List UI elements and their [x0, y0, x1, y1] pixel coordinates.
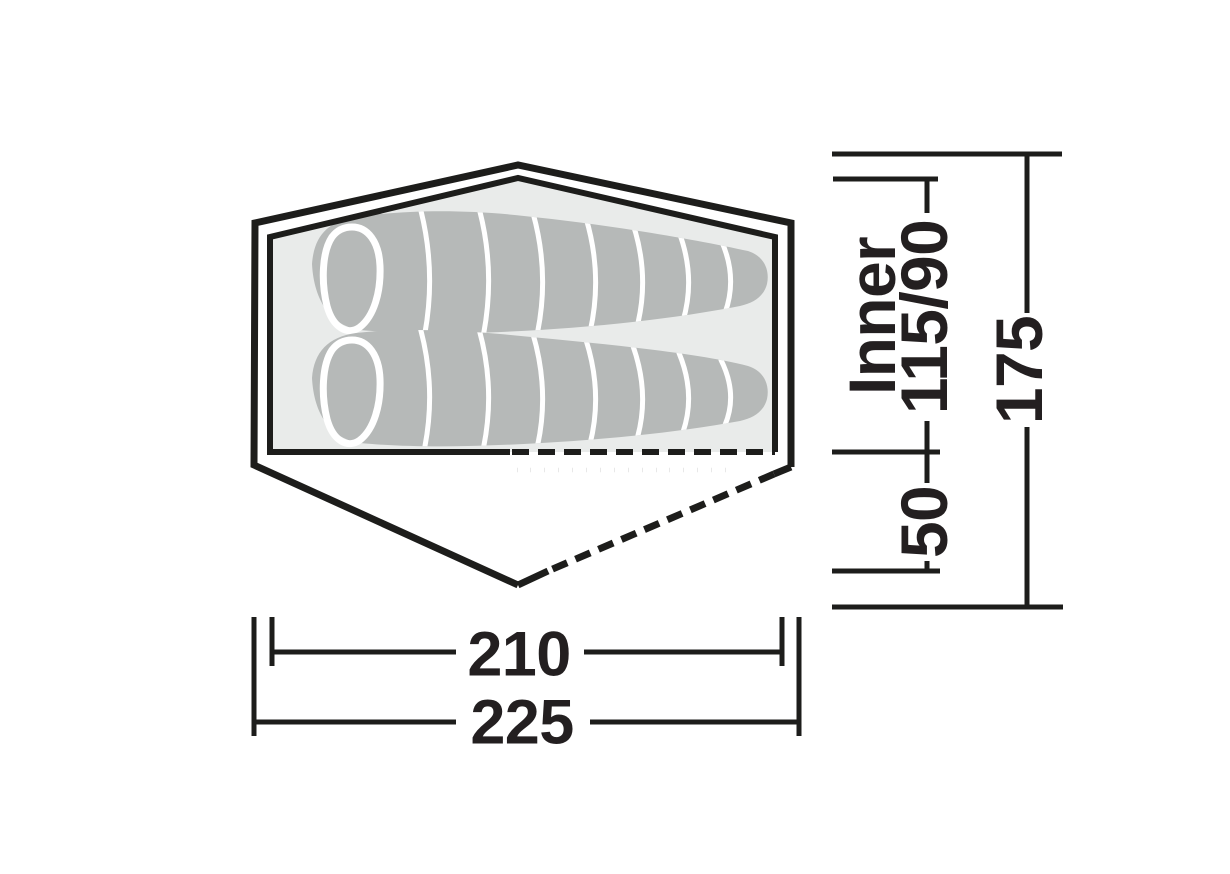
flysheet-door-dashed-edge [548, 474, 774, 571]
dim-value-total-length: 225 [470, 692, 573, 755]
tent-drawing-svg [0, 0, 1230, 874]
flysheet-door-stub-top [774, 467, 791, 474]
flysheet-door-stub-bottom [518, 571, 548, 585]
tent-floorplan-diagram: Inner 115/90 50 175 210 225 [0, 0, 1230, 874]
dim-value-total-depth: 175 [986, 316, 1052, 424]
dim-value-inner-width: 115/90 [891, 220, 957, 414]
dim-value-porch-depth: 50 [891, 486, 957, 558]
dim-value-inner-length: 210 [467, 624, 570, 687]
